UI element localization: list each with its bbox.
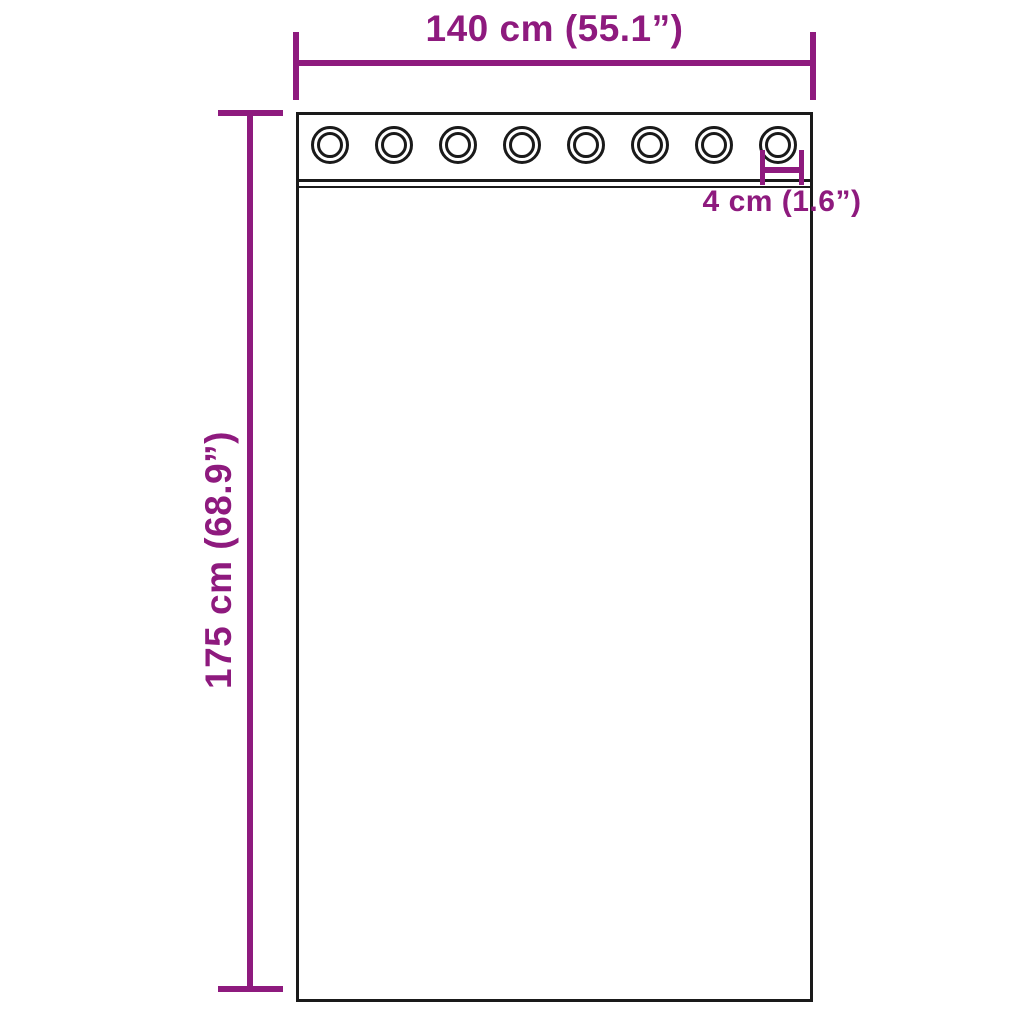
grommet-inner-ring — [317, 132, 343, 158]
height-dimension-top-tick — [218, 110, 283, 116]
curtain-panel-outline — [296, 112, 813, 1002]
height-dimension-label: 175 cm (68.9”) — [198, 431, 240, 689]
grommet-band-line — [299, 179, 810, 182]
grommet-inner-ring — [701, 132, 727, 158]
width-dimension-left-tick — [293, 32, 299, 100]
grommet-ring — [695, 126, 733, 164]
height-dimension-line — [247, 113, 253, 990]
grommet-ring — [439, 126, 477, 164]
grommet-ring — [567, 126, 605, 164]
grommet-ring — [311, 126, 349, 164]
grommet-dimension-label: 4 cm (1.6”) — [701, 185, 863, 219]
grommet-ring — [631, 126, 669, 164]
curtain-dimension-diagram: 140 cm (55.1”) 175 cm (68.9”) 4 cm (1.6”… — [0, 0, 1024, 1024]
width-dimension-label: 140 cm (55.1”) — [296, 8, 813, 50]
grommet-inner-ring — [445, 132, 471, 158]
width-dimension-line — [296, 60, 813, 66]
width-dimension-right-tick — [810, 32, 816, 100]
grommet-inner-ring — [573, 132, 599, 158]
grommet-inner-ring — [381, 132, 407, 158]
grommet-inner-ring — [765, 132, 791, 158]
height-dimension-bottom-tick — [218, 986, 283, 992]
grommet-inner-ring — [637, 132, 663, 158]
grommet-inner-ring — [509, 132, 535, 158]
grommet-ring — [375, 126, 413, 164]
grommet-dimension-bar — [760, 167, 804, 173]
grommet-ring — [503, 126, 541, 164]
